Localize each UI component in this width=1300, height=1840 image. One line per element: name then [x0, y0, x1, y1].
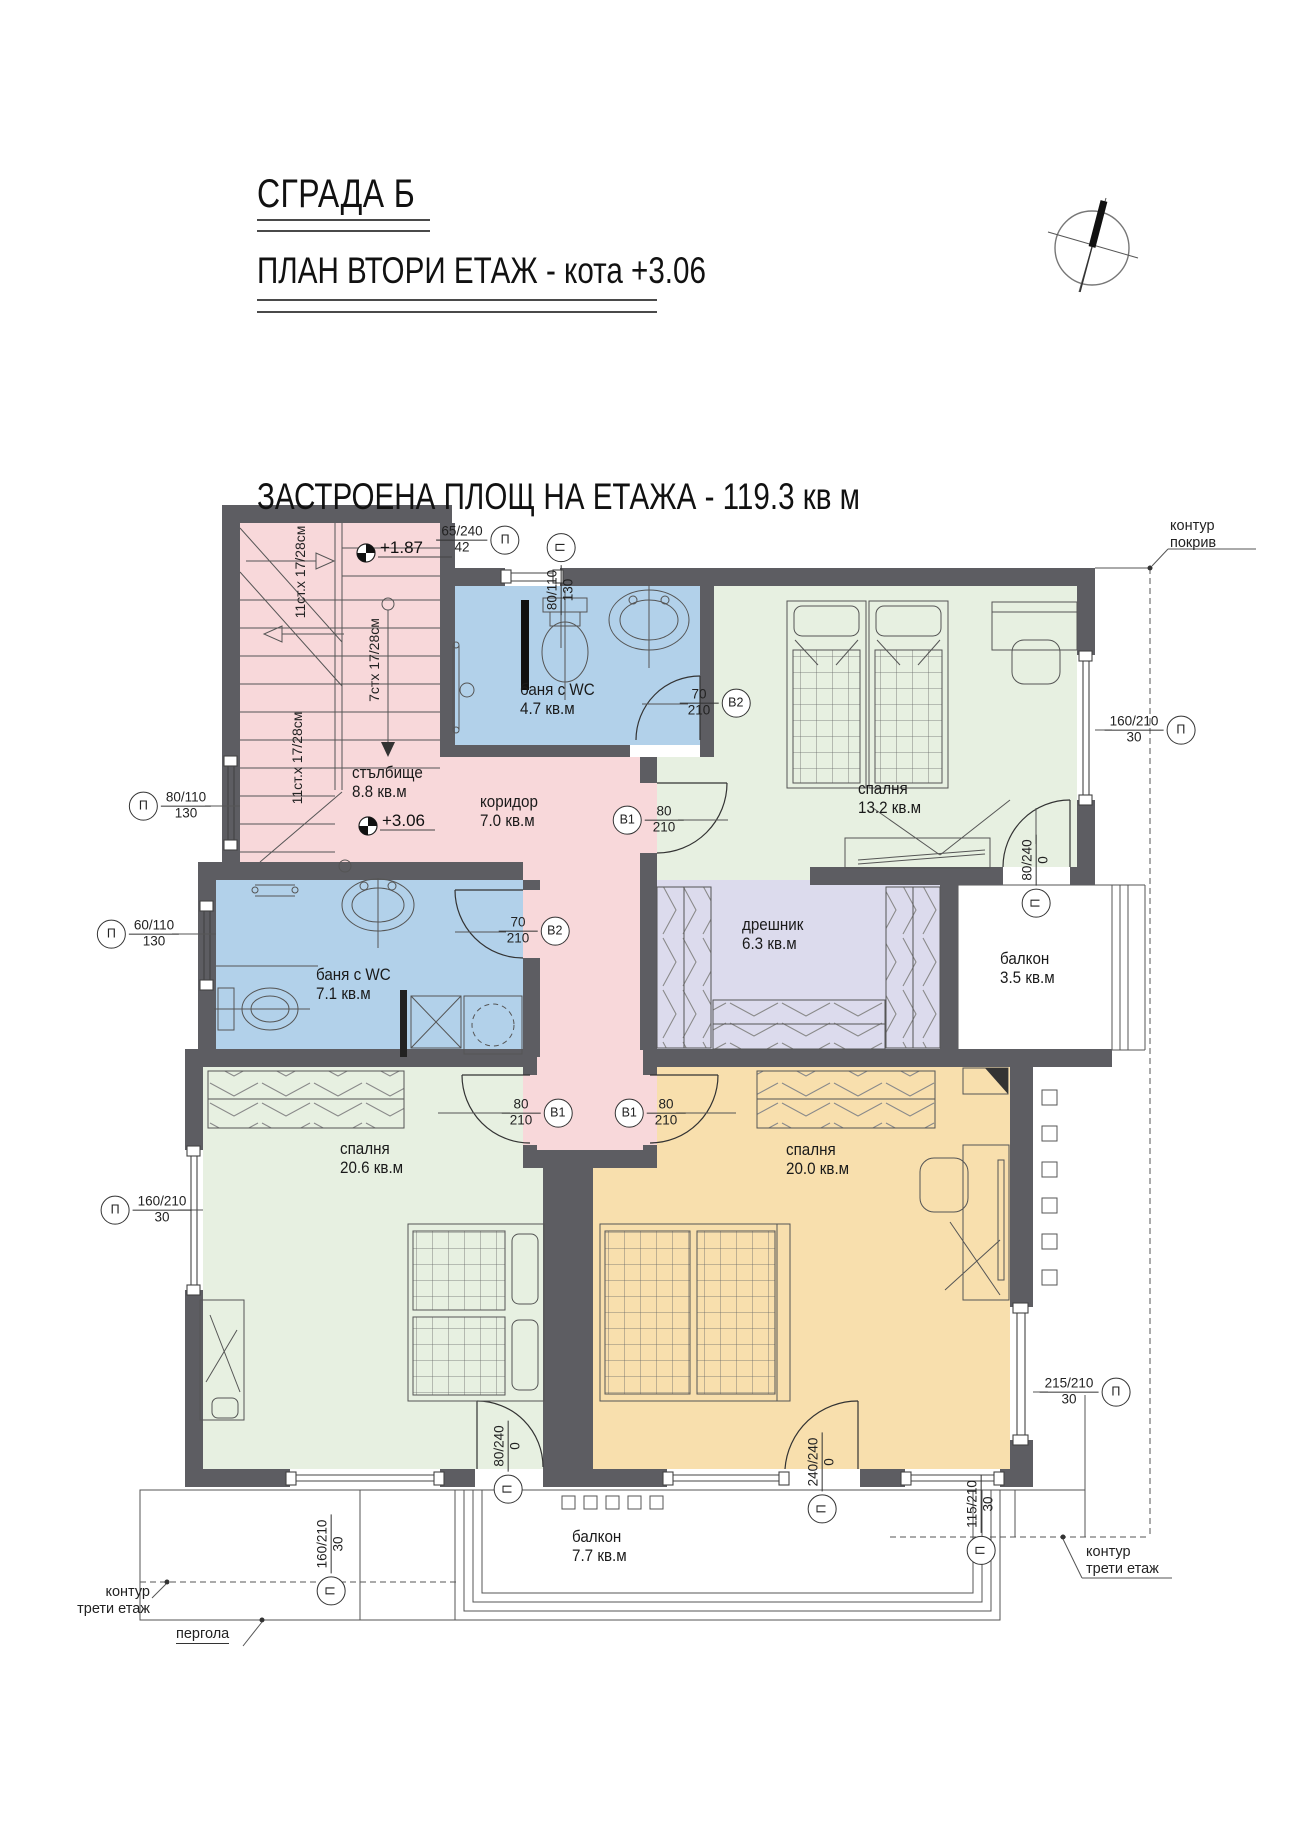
room-label-bath-small: баня с WC4.7 кв.м: [520, 681, 595, 720]
dim-tag: П: [547, 533, 576, 562]
room-bath-small: [455, 586, 700, 745]
dim-bottom-window-right: П 115/21030: [966, 1475, 997, 1565]
wardrobe-closet-right: [886, 887, 940, 1048]
dim-tag: П: [967, 1536, 996, 1565]
dim-tag: П: [129, 792, 158, 821]
dim-left-window-bedroom: П 160/21030: [101, 1195, 192, 1226]
floor-plan-sheet: СГРАДА Б ПЛАН ВТОРИ ЕТАЖ - кота +3.06 ЗА…: [0, 0, 1300, 1840]
dim-tag: B1: [543, 1099, 572, 1128]
dim-bottom-door-206: П 80/2400: [493, 1420, 524, 1503]
stair-note-flight-b: 7стх 17/28см: [366, 618, 382, 702]
annotation-third-floor-left: контур трети етаж: [62, 1584, 150, 1617]
title-plan: ПЛАН ВТОРИ ЕТАЖ - кота +3.06: [257, 250, 706, 292]
stair-note-flight-c: 11ст.х 17/28см: [289, 712, 305, 805]
dim-bottom-window-left: П 160/21030: [316, 1515, 347, 1606]
title-plan-underline-1: [257, 299, 657, 301]
room-label-balcony-35: балкон3.5 кв.м: [1000, 950, 1055, 989]
room-label-balcony-77: балкон7.7 кв.м: [572, 1528, 627, 1567]
dim-tag: B1: [615, 1099, 644, 1128]
dim-door-bedroom200: B1 80210: [615, 1098, 686, 1129]
dim-door-bath-small: 70210 B2: [680, 688, 751, 719]
room-label-bedroom-200: спалня20.0 кв.м: [786, 1141, 849, 1180]
dim-tag: П: [1166, 716, 1195, 745]
title-area: ЗАСТРОЕНА ПЛОЩ НА ЕТАЖА - 119.3 кв м: [257, 476, 860, 518]
room-bedroom-13: [657, 586, 1077, 880]
dim-tag: B2: [540, 917, 569, 946]
stair-note-flight-a: 11ст.х 17/28см: [292, 526, 308, 619]
level-lower: +3.06: [382, 811, 425, 831]
wardrobe-bedroom206: [208, 1071, 404, 1128]
wardrobe-closet-bottom: [713, 1000, 885, 1049]
level-upper: +1.87: [380, 538, 423, 558]
window-bedroom13-right: [1079, 651, 1092, 805]
room-balcony-77: [455, 1490, 1000, 1620]
title-building-underline-2: [257, 230, 430, 232]
room-label-staircase: стълбище8.8 кв.м: [352, 764, 423, 803]
dim-right-window-bedroom13: 160/21030 П: [1105, 715, 1196, 746]
dim-tag: П: [101, 1196, 130, 1225]
wardrobe-bedroom200: [757, 1071, 935, 1128]
dim-top-door: 65/24042 П: [436, 525, 519, 556]
dim-balcony35-door: П 80/2400: [1021, 834, 1052, 917]
annotation-pergola: пергола: [176, 1626, 229, 1643]
room-label-bedroom-13: спалня13.2 кв.м: [858, 780, 921, 819]
dim-tag: П: [1101, 1378, 1130, 1407]
dim-top-window: 80/110130 П: [546, 533, 577, 615]
room-label-closet: дрешник6.3 кв.м: [742, 916, 803, 955]
dim-tag: B1: [613, 806, 642, 835]
dim-tag: B2: [721, 689, 750, 718]
dim-tag: П: [491, 526, 520, 555]
dim-left-window-stair: П 80/110130: [129, 791, 211, 822]
dim-tag: П: [97, 920, 126, 949]
north-arrow-icon: [1048, 198, 1138, 292]
title-plan-underline-2: [257, 311, 657, 313]
room-label-bedroom-206: спалня20.6 кв.м: [340, 1140, 403, 1179]
room-label-corridor: коридор7.0 кв.м: [480, 793, 538, 832]
dim-tag: П: [494, 1475, 523, 1504]
title-building-underline-1: [257, 219, 430, 221]
dim-bottom-door-200: П 240/2400: [807, 1433, 838, 1524]
window-bottom-mid: [663, 1472, 789, 1485]
wardrobe-closet-left: [657, 887, 711, 1048]
dim-tag: П: [808, 1494, 837, 1523]
dim-door-bath-large: 70210 B2: [499, 916, 570, 947]
room-label-bath-large: баня с WC7.1 кв.м: [316, 966, 391, 1005]
annotation-roof-contour: контур покрив: [1170, 518, 1216, 551]
title-building: СГРАДА Б: [257, 172, 415, 217]
window-bottom-left: [286, 1472, 444, 1485]
window-bedroom200-right: [1013, 1303, 1028, 1445]
dim-tag: П: [1022, 889, 1051, 918]
dim-tag: П: [317, 1576, 346, 1605]
dim-door-bedroom13: B1 80210: [613, 805, 684, 836]
shelf-boxes-200: [1042, 1090, 1057, 1285]
dim-right-window-bedroom20: 215/21030 П: [1040, 1377, 1131, 1408]
dim-door-bedroom206: 80210 B1: [502, 1098, 573, 1129]
annotation-third-floor-right: контур трети етаж: [1086, 1544, 1159, 1577]
dim-left-window-bath: П 60/110130: [97, 919, 179, 950]
